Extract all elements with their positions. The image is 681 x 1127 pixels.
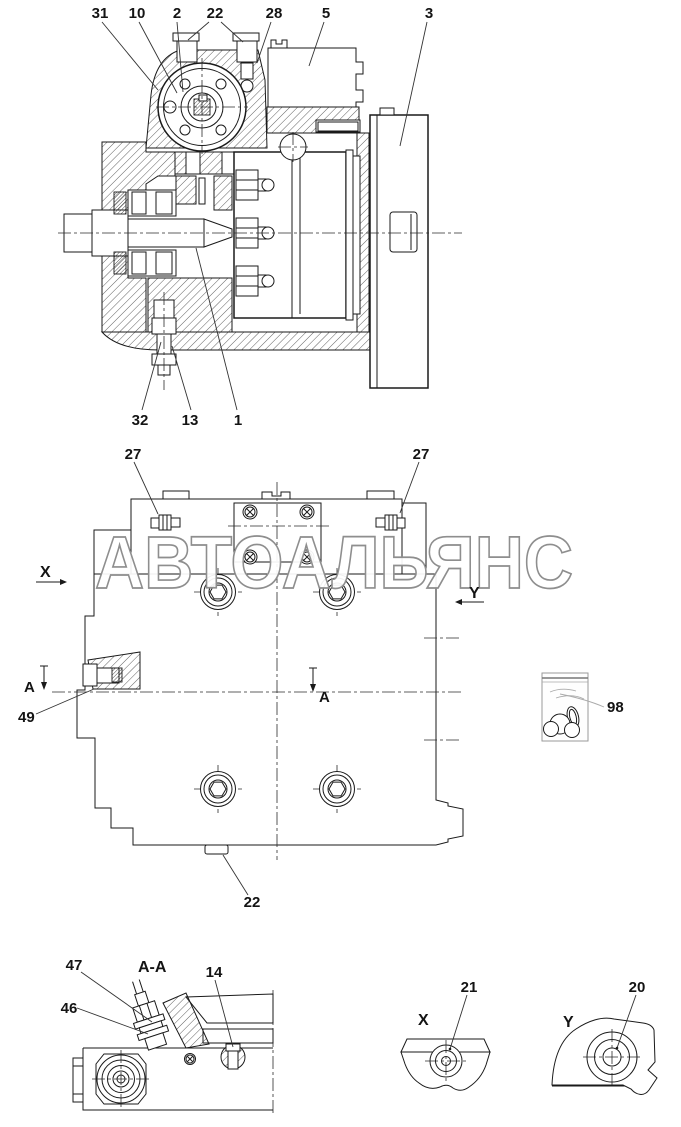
section-marker-a-left	[40, 666, 48, 690]
rear-cover-plate	[370, 108, 428, 388]
detail-title-x: X	[418, 1012, 429, 1029]
view-label-y-arrow: Y	[469, 585, 480, 602]
callout-20: 20	[629, 979, 646, 996]
callout-10: 10	[129, 5, 146, 22]
watermark-text: АВТОАЛЬЯНС	[95, 521, 573, 604]
bolt-14	[221, 1044, 245, 1069]
callout-13: 13	[182, 412, 199, 429]
callout-21: 21	[461, 979, 478, 996]
callout-5: 5	[322, 5, 330, 22]
parts-bag-98	[542, 673, 604, 741]
callout-28: 28	[266, 5, 283, 22]
detail-x-drawing	[401, 995, 490, 1090]
callout-98: 98	[607, 699, 624, 716]
callout-47: 47	[66, 957, 83, 974]
callout-27-right: 27	[413, 446, 430, 463]
technical-drawing: АВТОАЛЬЯНС 31 10 2 22 28 5 3 32 13 1 27 …	[0, 0, 681, 1127]
callout-22: 22	[207, 5, 224, 22]
rotor-assembly	[234, 150, 360, 320]
callout-27-left: 27	[125, 446, 142, 463]
callout-1: 1	[234, 412, 242, 429]
section-label-a-mid: A	[319, 689, 330, 706]
round-plug	[92, 1050, 150, 1108]
drawing-sheet: АВТОАЛЬЯНС 31 10 2 22 28 5 3 32 13 1 27 …	[0, 0, 681, 1127]
detail-title-y: Y	[563, 1014, 574, 1031]
view-label-x-arrow: X	[40, 564, 51, 581]
callout-2: 2	[173, 5, 181, 22]
fitting-46-47	[121, 976, 172, 1052]
callout-3: 3	[425, 5, 433, 22]
callout-31: 31	[92, 5, 109, 22]
section-label-a-left: A	[24, 679, 35, 696]
bottom-plug-22	[205, 845, 228, 854]
callout-22-bottom: 22	[244, 894, 261, 911]
valve-block	[268, 48, 363, 107]
callout-49: 49	[18, 709, 35, 726]
callout-14: 14	[206, 964, 223, 981]
callout-46: 46	[61, 1000, 78, 1017]
section-title-aa: A-A	[138, 959, 167, 976]
main-section-drawing	[58, 22, 462, 410]
pump-body	[77, 574, 463, 845]
section-aa-drawing	[73, 972, 273, 1115]
callout-32: 32	[132, 412, 149, 429]
detail-y-drawing	[552, 995, 657, 1094]
